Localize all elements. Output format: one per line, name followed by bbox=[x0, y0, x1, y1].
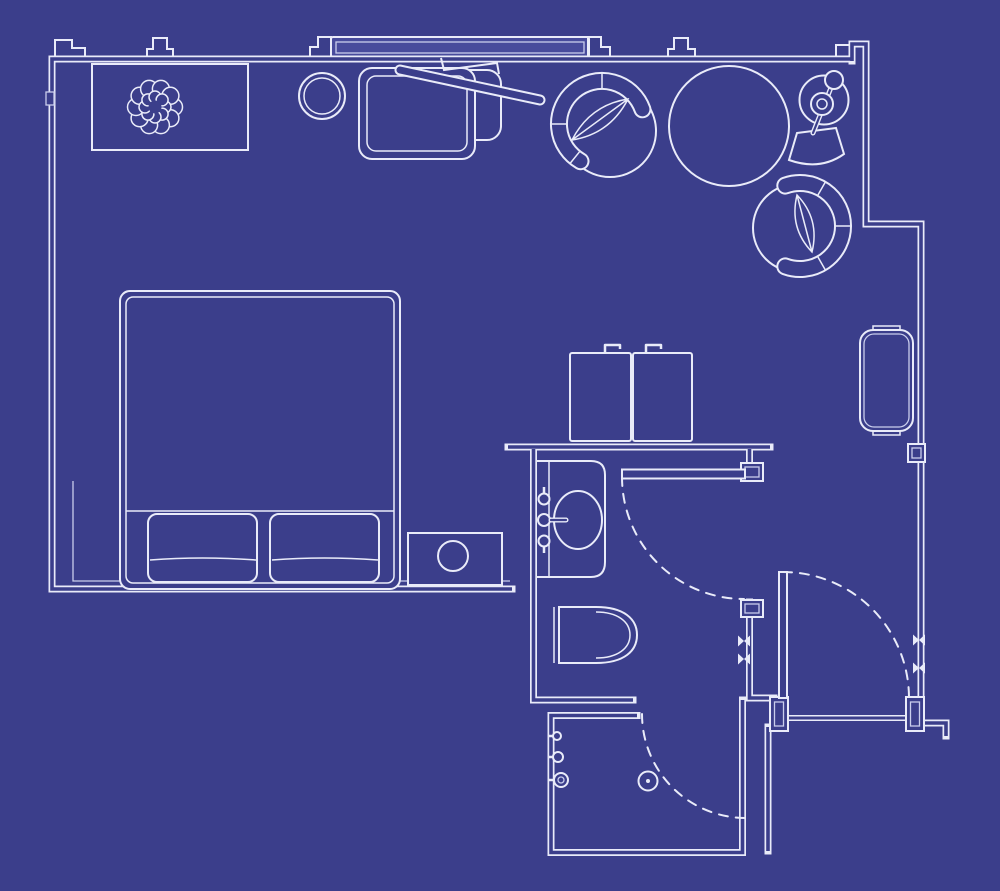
twin-basin-right bbox=[633, 353, 692, 441]
floor-lamp-joint-top bbox=[825, 71, 843, 89]
luggage-bench-body bbox=[860, 330, 913, 431]
bathroom-door-leaf bbox=[622, 470, 745, 479]
pillow-right bbox=[270, 514, 379, 582]
console-table bbox=[92, 64, 248, 150]
faucet-knob-top bbox=[539, 494, 550, 505]
nightstand bbox=[408, 533, 502, 585]
floor-plan-page bbox=[0, 0, 1000, 891]
bed bbox=[120, 291, 400, 589]
bathroom-door-jamb-bottom bbox=[741, 600, 763, 617]
wall-panel-switch bbox=[908, 444, 925, 462]
entry-door-leaf bbox=[779, 572, 787, 698]
floor-drain-center bbox=[646, 779, 650, 783]
shower-knob-1 bbox=[553, 732, 561, 740]
shower-head bbox=[554, 773, 568, 787]
twin-basin-left bbox=[570, 353, 631, 441]
luggage-bench bbox=[860, 326, 913, 435]
pillow-left bbox=[148, 514, 257, 582]
floor-lamp-joint-mid bbox=[811, 93, 833, 115]
faucet-knob-bottom bbox=[539, 536, 550, 547]
faucet bbox=[538, 514, 550, 526]
shower-knob-2 bbox=[553, 752, 563, 762]
left-wall-tick bbox=[46, 92, 54, 105]
flower-decor bbox=[128, 80, 183, 133]
floor-plan-drawing bbox=[0, 0, 1000, 891]
window-panel bbox=[331, 37, 589, 57]
twin-basin-counter bbox=[570, 345, 692, 441]
